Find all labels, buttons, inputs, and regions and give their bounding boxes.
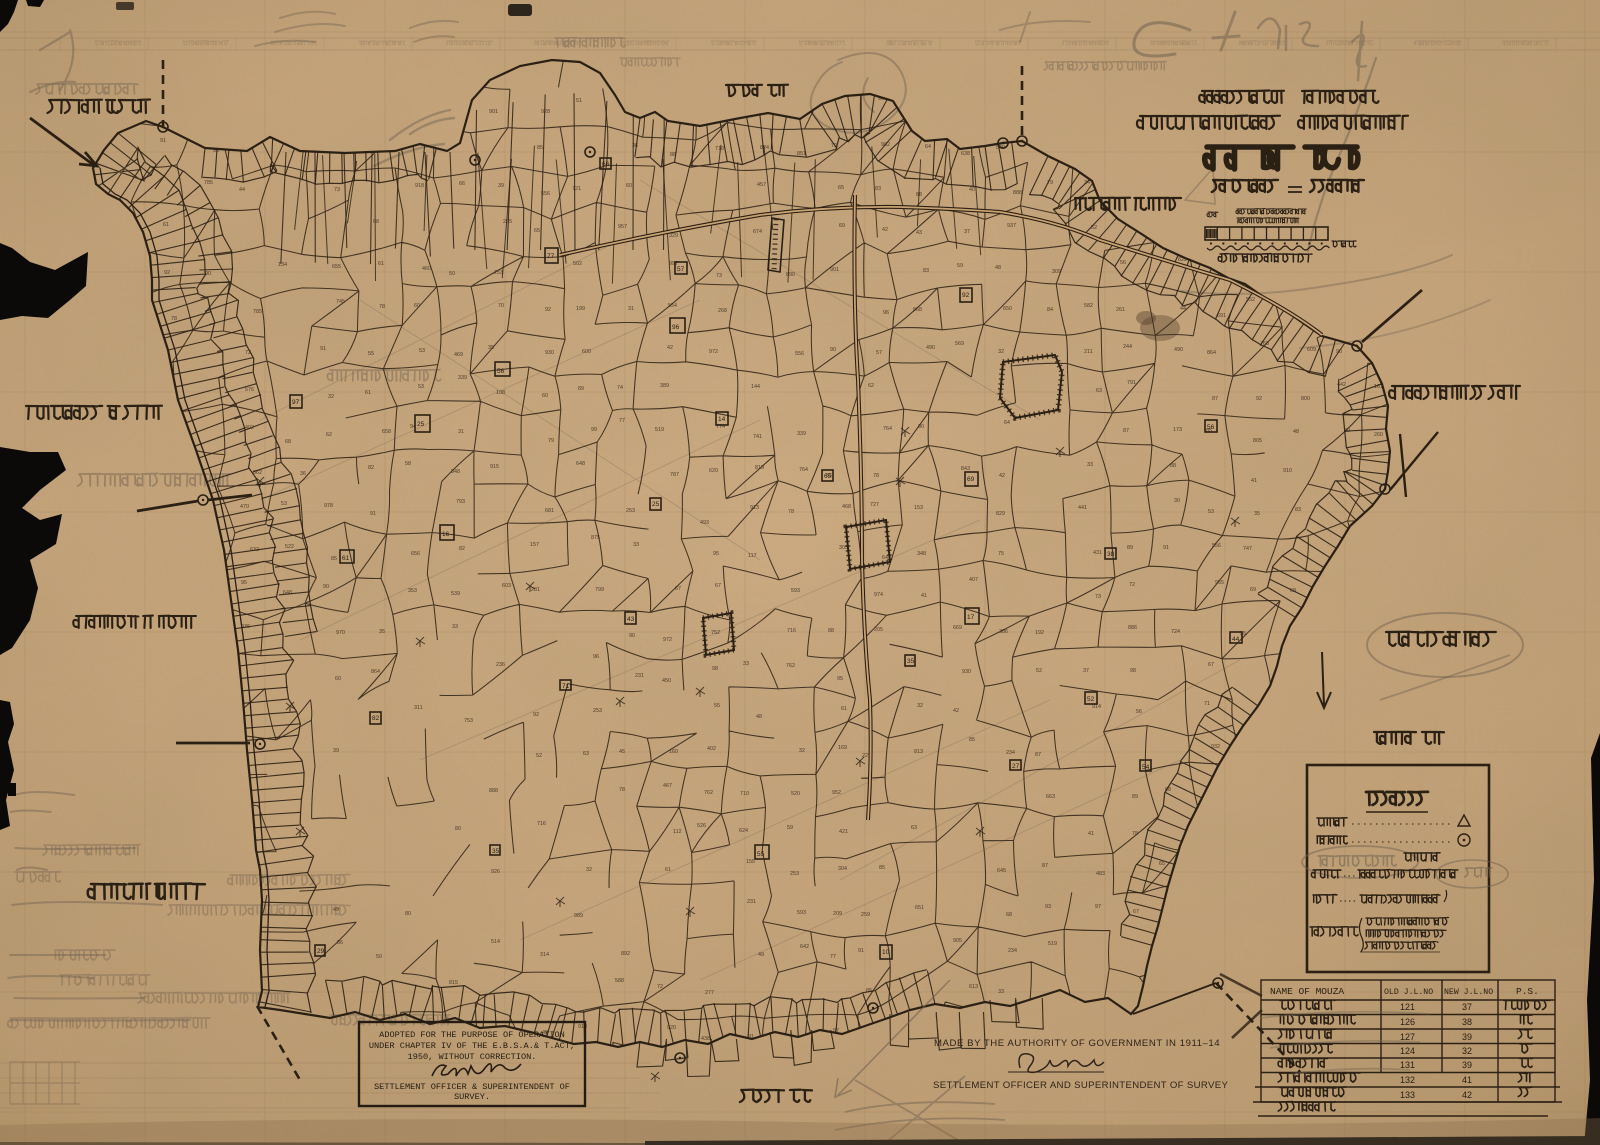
svg-text:48: 48 (756, 714, 762, 720)
svg-text:49: 49 (758, 952, 764, 958)
svg-text:87: 87 (1123, 428, 1129, 434)
svg-text:59: 59 (787, 825, 793, 831)
svg-text:716: 716 (537, 821, 546, 827)
svg-text:90: 90 (629, 633, 635, 639)
svg-text:40: 40 (969, 187, 975, 193)
svg-text:53: 53 (281, 501, 287, 507)
svg-text:663: 663 (1046, 794, 1055, 800)
svg-text:35: 35 (488, 345, 494, 351)
svg-text:32: 32 (586, 867, 592, 873)
svg-text:642: 642 (800, 944, 809, 950)
svg-text:97: 97 (1095, 904, 1101, 910)
svg-text:132: 132 (1400, 1075, 1415, 1085)
svg-text:85: 85 (879, 865, 885, 871)
svg-text:764: 764 (883, 426, 892, 432)
svg-text:920: 920 (667, 1025, 676, 1031)
svg-text:NEW J.L.NO: NEW J.L.NO (1444, 988, 1493, 997)
svg-text:785: 785 (253, 309, 262, 315)
svg-text:157: 157 (530, 542, 539, 548)
svg-text:576: 576 (245, 387, 254, 393)
svg-text:73: 73 (1095, 594, 1101, 600)
svg-text:556: 556 (795, 351, 804, 357)
svg-text:63: 63 (583, 751, 589, 757)
svg-text:80: 80 (405, 911, 411, 917)
svg-text:588: 588 (615, 978, 624, 984)
svg-text:234: 234 (1008, 948, 1017, 954)
svg-text:90: 90 (918, 424, 924, 430)
svg-text:52: 52 (1087, 696, 1095, 703)
svg-text:52: 52 (1036, 668, 1042, 674)
svg-text:ADOPTED FOR THE PURPOSE OF OPE: ADOPTED FOR THE PURPOSE OF OPERATION (379, 1030, 565, 1040)
svg-text:650: 650 (1003, 306, 1012, 312)
svg-text:96: 96 (593, 654, 599, 660)
svg-text:83: 83 (875, 186, 881, 192)
svg-text:915: 915 (490, 464, 499, 470)
svg-text:37: 37 (964, 229, 970, 235)
svg-text:42: 42 (1462, 1090, 1472, 1100)
svg-text:905: 905 (953, 938, 962, 944)
svg-text:805: 805 (1253, 438, 1262, 444)
svg-text:96: 96 (672, 324, 680, 331)
svg-text:37: 37 (1462, 1002, 1472, 1012)
svg-text:261: 261 (1116, 307, 1125, 313)
svg-text:613: 613 (969, 984, 978, 990)
svg-text:124: 124 (1400, 1046, 1415, 1056)
svg-text:42: 42 (953, 708, 959, 714)
svg-text:85: 85 (969, 737, 975, 743)
svg-text:244: 244 (1123, 344, 1132, 350)
svg-text:681: 681 (545, 508, 554, 514)
svg-text:982: 982 (881, 142, 890, 148)
svg-text:793: 793 (456, 499, 465, 505)
svg-text:25: 25 (417, 421, 425, 428)
svg-text:55: 55 (714, 703, 720, 709)
svg-text:819: 819 (755, 465, 764, 471)
svg-text:16: 16 (442, 531, 450, 538)
svg-text:112: 112 (673, 829, 682, 835)
svg-text:886: 886 (1128, 625, 1137, 631)
svg-text:268: 268 (718, 308, 727, 314)
svg-text:33: 33 (1087, 462, 1093, 468)
svg-text:791: 791 (1127, 380, 1136, 386)
svg-text:95: 95 (241, 580, 247, 586)
svg-text:67: 67 (675, 586, 681, 592)
svg-text:457: 457 (757, 182, 766, 188)
svg-text:467: 467 (663, 783, 672, 789)
svg-text:972: 972 (663, 637, 672, 643)
svg-text:67: 67 (1208, 662, 1214, 668)
svg-text:45: 45 (619, 749, 625, 755)
svg-text:91: 91 (320, 346, 326, 352)
svg-text:520: 520 (791, 791, 800, 797)
svg-text:90: 90 (830, 347, 836, 353)
svg-text:43: 43 (627, 616, 635, 623)
svg-text:33: 33 (452, 624, 458, 630)
svg-text:253: 253 (494, 270, 503, 276)
svg-text:69: 69 (839, 223, 845, 229)
svg-text:78: 78 (1132, 831, 1138, 837)
svg-text:624: 624 (739, 828, 748, 834)
svg-text:438: 438 (701, 1036, 710, 1042)
svg-text:39: 39 (1462, 1032, 1472, 1042)
svg-text:974: 974 (874, 592, 883, 598)
svg-text:62: 62 (868, 383, 874, 389)
svg-text:48: 48 (1293, 429, 1299, 435)
svg-text:813: 813 (914, 749, 923, 755)
svg-text:32: 32 (799, 748, 805, 754)
svg-text:50: 50 (376, 954, 382, 960)
svg-text:38: 38 (1107, 551, 1115, 558)
svg-text:556: 556 (1212, 543, 1221, 549)
svg-text:35: 35 (907, 658, 915, 665)
svg-text:117: 117 (748, 553, 757, 559)
svg-text:80: 80 (455, 826, 461, 832)
svg-text:785: 785 (204, 180, 213, 186)
svg-text:77: 77 (547, 253, 555, 260)
svg-text:648: 648 (576, 461, 585, 467)
svg-text:83: 83 (1295, 507, 1301, 513)
svg-text:402: 402 (707, 746, 716, 752)
svg-text:762: 762 (704, 790, 713, 796)
svg-text:937: 937 (1007, 223, 1016, 229)
svg-text:31: 31 (458, 429, 464, 435)
svg-text:144: 144 (751, 384, 760, 390)
svg-text:910: 910 (1283, 468, 1292, 474)
svg-text:386: 386 (999, 629, 1008, 635)
svg-text:87: 87 (1042, 863, 1048, 869)
svg-text:234: 234 (1006, 750, 1015, 756)
svg-text:60: 60 (335, 676, 341, 682)
svg-text:83: 83 (923, 268, 929, 274)
svg-text:407: 407 (969, 577, 978, 583)
svg-text:68: 68 (285, 439, 291, 445)
svg-text:651: 651 (915, 905, 924, 911)
svg-text:522: 522 (285, 544, 294, 550)
svg-text:502: 502 (573, 261, 582, 267)
svg-text:741: 741 (753, 434, 762, 440)
svg-text:441: 441 (1078, 505, 1087, 511)
svg-text:41: 41 (1462, 1075, 1472, 1085)
svg-text:60: 60 (542, 393, 548, 399)
svg-text:91: 91 (370, 511, 376, 517)
svg-text:69: 69 (1250, 587, 1256, 593)
svg-text:901: 901 (489, 109, 498, 115)
svg-text:648: 648 (283, 590, 292, 596)
svg-text:48: 48 (995, 265, 1001, 271)
svg-text:90: 90 (1336, 349, 1342, 355)
svg-text:33: 33 (633, 542, 639, 548)
svg-text:57: 57 (876, 350, 882, 356)
svg-text:888: 888 (1013, 190, 1022, 196)
svg-text:339: 339 (797, 431, 806, 437)
svg-text:155: 155 (746, 859, 755, 865)
svg-text:67: 67 (1133, 909, 1139, 915)
svg-text:SETTLEMENT OFFICER & SUPERINTE: SETTLEMENT OFFICER & SUPERINTENDENT OF (374, 1082, 570, 1092)
svg-text:17: 17 (967, 614, 975, 621)
svg-text:61: 61 (378, 261, 384, 267)
svg-text:71: 71 (1204, 701, 1210, 707)
svg-text:71: 71 (562, 683, 570, 690)
svg-text:514: 514 (491, 939, 500, 945)
svg-text:92: 92 (1256, 396, 1262, 402)
svg-text:253: 253 (790, 871, 799, 877)
svg-text:97: 97 (292, 399, 300, 406)
svg-text:43: 43 (916, 230, 922, 236)
svg-text:92: 92 (164, 270, 170, 276)
svg-text:554: 554 (668, 303, 677, 309)
svg-text:231: 231 (747, 899, 756, 905)
svg-text:89: 89 (1127, 545, 1133, 551)
svg-text:930: 930 (962, 669, 971, 675)
svg-text:253: 253 (593, 708, 602, 714)
svg-text:68: 68 (373, 219, 379, 225)
svg-text:65: 65 (838, 185, 844, 191)
svg-text:259: 259 (861, 912, 870, 918)
svg-text:88: 88 (1170, 463, 1176, 469)
svg-text:721: 721 (572, 186, 581, 192)
svg-text:389: 389 (660, 383, 669, 389)
svg-text:91: 91 (160, 138, 166, 144)
svg-text:61: 61 (163, 222, 169, 228)
svg-text:OLD J.L.NO: OLD J.L.NO (1384, 988, 1433, 997)
svg-text:211: 211 (1084, 349, 1093, 355)
svg-text:638: 638 (961, 151, 970, 157)
svg-text:253: 253 (626, 508, 635, 514)
svg-text:460: 460 (422, 266, 431, 272)
svg-text:231: 231 (635, 673, 644, 679)
svg-text:39: 39 (1462, 1060, 1472, 1070)
svg-text:92: 92 (545, 307, 551, 313)
svg-text:603: 603 (502, 583, 511, 589)
svg-text:787: 787 (670, 472, 679, 478)
svg-text:53: 53 (419, 348, 425, 354)
svg-text:304: 304 (838, 866, 847, 872)
svg-text:126: 126 (1400, 1017, 1415, 1027)
svg-text:61: 61 (841, 706, 847, 712)
svg-text:35: 35 (1254, 511, 1260, 517)
svg-text:59: 59 (957, 263, 963, 269)
svg-text:52: 52 (536, 753, 542, 759)
svg-text:51: 51 (576, 98, 582, 104)
svg-text:29: 29 (317, 948, 325, 955)
svg-text:61: 61 (665, 867, 671, 873)
svg-text:655: 655 (332, 264, 341, 270)
svg-text:815: 815 (449, 980, 458, 986)
svg-text:468: 468 (842, 504, 851, 510)
svg-text:41: 41 (1088, 831, 1094, 837)
svg-text:526: 526 (697, 823, 706, 829)
svg-text:36: 36 (300, 471, 306, 477)
svg-text:78: 78 (379, 304, 385, 310)
svg-text:UNDER CHAPTER IV OF THE E.B.S.: UNDER CHAPTER IV OF THE E.B.S.A.& T.ACT, (369, 1041, 575, 1051)
svg-text:582: 582 (1084, 303, 1093, 309)
svg-text:762: 762 (786, 663, 795, 669)
svg-text:989: 989 (574, 913, 583, 919)
svg-text:890: 890 (786, 272, 795, 278)
svg-text:914: 914 (1092, 704, 1101, 710)
svg-text:73: 73 (716, 273, 722, 279)
svg-text:609: 609 (1307, 347, 1316, 353)
svg-text:44: 44 (239, 187, 245, 193)
svg-text:892: 892 (621, 951, 630, 957)
svg-text:32: 32 (998, 349, 1004, 355)
svg-text:972: 972 (709, 349, 718, 355)
svg-text:421: 421 (839, 829, 848, 835)
svg-text:490: 490 (1174, 347, 1183, 353)
svg-text:469: 469 (454, 352, 463, 358)
svg-text:35: 35 (492, 848, 500, 855)
svg-text:42: 42 (667, 345, 673, 351)
svg-text:38: 38 (1462, 1017, 1472, 1027)
svg-text:58: 58 (405, 461, 411, 467)
svg-text:14: 14 (718, 416, 726, 423)
svg-text:86: 86 (337, 940, 343, 946)
svg-text:78: 78 (788, 509, 794, 515)
svg-text:764: 764 (799, 467, 808, 473)
svg-text:493: 493 (700, 520, 709, 526)
svg-text:27: 27 (1012, 763, 1020, 770)
svg-text:75: 75 (998, 551, 1004, 557)
svg-text:727: 727 (870, 502, 879, 508)
svg-text:121: 121 (1400, 1002, 1415, 1012)
svg-text:978: 978 (324, 503, 333, 509)
svg-text:329: 329 (669, 233, 678, 239)
svg-text:539: 539 (451, 591, 460, 597)
svg-text:64: 64 (1004, 420, 1010, 426)
svg-text:89: 89 (1132, 794, 1138, 800)
svg-text:108: 108 (496, 390, 505, 396)
svg-text:656: 656 (411, 551, 420, 557)
svg-text:NAME OF MOUZA: NAME OF MOUZA (1270, 986, 1344, 997)
svg-text:173: 173 (1173, 427, 1182, 433)
svg-text:89: 89 (578, 386, 584, 392)
svg-text:32: 32 (328, 394, 334, 400)
svg-text:92: 92 (533, 712, 539, 718)
svg-text:56: 56 (1207, 424, 1215, 431)
svg-text:98: 98 (1130, 668, 1136, 674)
svg-text:49: 49 (333, 907, 339, 913)
svg-text:669: 669 (953, 625, 962, 631)
svg-text:39: 39 (333, 748, 339, 754)
svg-text:205: 205 (874, 627, 883, 633)
svg-text:30: 30 (1174, 498, 1180, 504)
svg-text:658: 658 (382, 429, 391, 435)
svg-text:99: 99 (591, 427, 597, 433)
svg-text:868: 868 (913, 307, 922, 313)
svg-text:875: 875 (591, 535, 600, 541)
svg-text:79: 79 (548, 438, 554, 444)
svg-text:39: 39 (498, 183, 504, 189)
svg-text:54: 54 (1142, 764, 1150, 771)
svg-text:450: 450 (662, 678, 671, 684)
svg-text:63: 63 (1096, 388, 1102, 394)
svg-text:888: 888 (489, 788, 498, 794)
svg-text:645: 645 (997, 868, 1006, 874)
svg-text:470: 470 (240, 504, 249, 510)
svg-text:10: 10 (882, 949, 890, 956)
svg-text:68: 68 (1006, 912, 1012, 918)
svg-text:53: 53 (1208, 509, 1214, 515)
svg-text:62: 62 (326, 432, 332, 438)
svg-text:314: 314 (540, 952, 549, 958)
svg-text:131: 131 (1400, 1060, 1415, 1070)
svg-text:87: 87 (1212, 396, 1218, 402)
svg-text:56: 56 (1120, 260, 1126, 266)
svg-text:674: 674 (753, 229, 762, 235)
svg-text:96: 96 (883, 310, 889, 316)
svg-text:957: 957 (618, 224, 627, 230)
svg-text:913: 913 (750, 505, 759, 511)
svg-text:747: 747 (1243, 546, 1252, 552)
svg-text:84: 84 (1047, 307, 1053, 313)
svg-text:64: 64 (925, 144, 931, 150)
svg-text:205: 205 (503, 219, 512, 225)
svg-text:199: 199 (576, 306, 585, 312)
svg-text:65: 65 (1159, 861, 1165, 867)
svg-text:339: 339 (458, 375, 467, 381)
svg-text:952: 952 (832, 790, 841, 796)
svg-text:236: 236 (496, 662, 505, 668)
svg-text:91: 91 (858, 948, 864, 954)
svg-text:63: 63 (911, 825, 917, 831)
svg-text:41: 41 (921, 593, 927, 599)
svg-text:60: 60 (414, 303, 420, 309)
svg-text:133: 133 (1400, 1090, 1415, 1100)
svg-text:61: 61 (342, 555, 350, 562)
svg-text:65: 65 (824, 473, 832, 480)
svg-text:710: 710 (740, 791, 749, 797)
svg-text:91: 91 (1163, 545, 1169, 551)
svg-text:57: 57 (677, 266, 685, 273)
svg-text:56: 56 (1136, 709, 1142, 715)
svg-text:134: 134 (278, 262, 287, 268)
svg-text:928: 928 (541, 109, 550, 115)
svg-text:431: 431 (1093, 550, 1102, 556)
svg-text:169: 169 (838, 745, 847, 751)
svg-text:519: 519 (655, 427, 664, 433)
svg-text:34: 34 (1084, 180, 1090, 186)
svg-text:519: 519 (1048, 941, 1057, 947)
svg-text:593: 593 (791, 588, 800, 594)
svg-text:60: 60 (626, 183, 632, 189)
svg-text:41: 41 (1251, 478, 1257, 484)
svg-text:209: 209 (833, 911, 842, 917)
svg-text:61: 61 (365, 390, 371, 396)
svg-text:44: 44 (1232, 636, 1240, 643)
svg-text:800: 800 (1301, 396, 1310, 402)
svg-text:SURVEY.: SURVEY. (454, 1092, 490, 1102)
svg-text:95: 95 (837, 676, 843, 682)
svg-text:56: 56 (497, 368, 505, 375)
svg-text:37: 37 (1083, 668, 1089, 674)
svg-text:72: 72 (1129, 582, 1135, 588)
svg-text:620: 620 (709, 468, 718, 474)
svg-text:82: 82 (459, 546, 465, 552)
svg-text:901: 901 (830, 267, 839, 273)
svg-text:44: 44 (1180, 306, 1186, 312)
svg-text:848: 848 (451, 469, 460, 475)
svg-text:716: 716 (787, 628, 796, 634)
svg-text:95: 95 (713, 551, 719, 557)
svg-text:926: 926 (491, 869, 500, 875)
svg-text:160: 160 (669, 749, 678, 755)
svg-text:72: 72 (657, 984, 663, 990)
svg-text:70: 70 (498, 303, 504, 309)
svg-text:864: 864 (371, 669, 380, 675)
svg-text:85: 85 (331, 556, 337, 562)
svg-text:50: 50 (449, 271, 455, 277)
svg-text:955: 955 (1215, 580, 1224, 586)
